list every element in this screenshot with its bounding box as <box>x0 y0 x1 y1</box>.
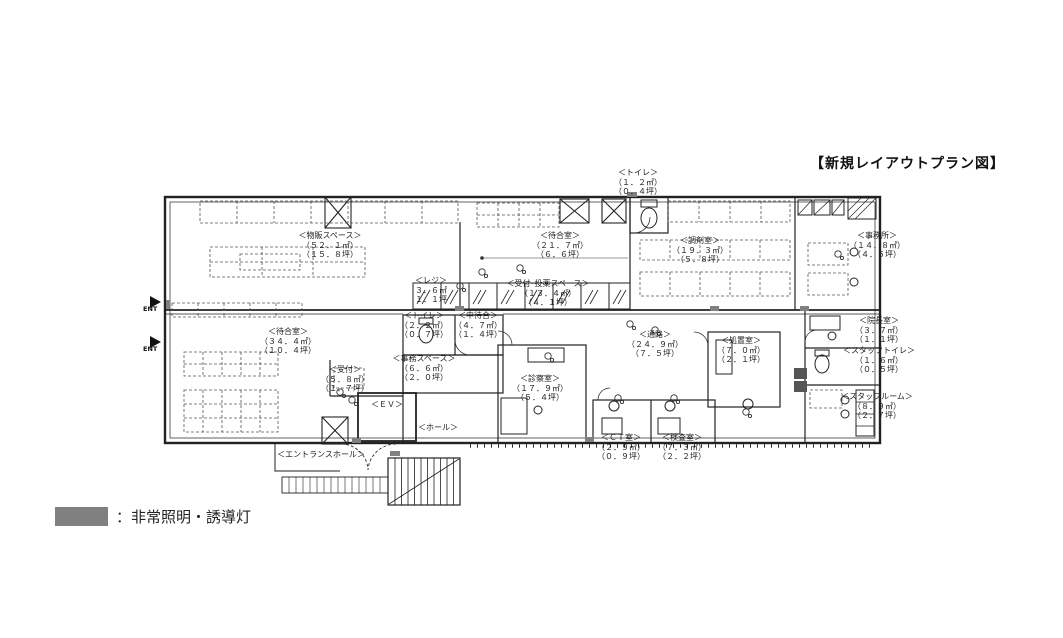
room-name: ＜物販スペース＞ <box>298 231 361 241</box>
room-area: （６．６㎡） <box>392 364 455 374</box>
room-area: （３．７㎡） <box>855 326 903 336</box>
room-tsubo: （２．２坪） <box>658 452 706 462</box>
room-label-toilet-mid: ＜トイレ＞ （２．２㎡） （０．７坪） <box>400 311 448 340</box>
room-name: ＜スタッフルーム＞ <box>841 392 913 402</box>
room-area: （７．０㎡） <box>717 346 765 356</box>
room-tsubo: （１．１坪） <box>855 335 903 345</box>
room-tsubo: （４．５坪） <box>849 250 905 260</box>
ent-label: ENT <box>143 345 157 353</box>
room-area: （２１．７㎡） <box>532 241 588 251</box>
room-label-kensa: ＜検査室＞ （７．３㎡） （２．２坪） <box>658 433 706 462</box>
room-label-reji: ＜レジ＞ ３．６㎡ １．１坪 <box>415 276 447 305</box>
room-name: ＜院長室＞ <box>855 316 903 326</box>
emergency-light-swatch <box>55 507 108 526</box>
room-name: ＜ＣＴ室＞ <box>597 433 645 443</box>
room-name: ＜エントランスホール＞ <box>277 450 365 460</box>
room-name: ＜待合室＞ <box>532 231 588 241</box>
room-tsubo: （５．８坪） <box>672 255 728 265</box>
toilet-fixture <box>815 355 829 373</box>
room-label-entrance-hall: ＜エントランスホール＞ <box>277 450 365 460</box>
legend-label: ：非常照明・誘導灯 <box>116 506 251 527</box>
room-label-ct: ＜ＣＴ室＞ （２．９㎡） （０．９坪） <box>597 433 645 462</box>
room-label-bussan-space: ＜物販スペース＞ （５２．１㎡） （１５．８坪） <box>298 231 361 260</box>
room-label-uketsuke: ＜受付＞ （５．８㎡） （１．７坪） <box>321 365 369 394</box>
room-label-shochi: ＜処置室＞ （７．０㎡） （２．１坪） <box>717 336 765 365</box>
room-area: （１３．４㎡） <box>506 289 589 299</box>
room-name: ＜受付＞ <box>321 365 369 375</box>
room-tsubo: （２．０坪） <box>392 373 455 383</box>
room-tsubo: １．１坪 <box>415 295 447 305</box>
room-label-staff-toilet: ＜スタッフトイレ＞ （１．６㎡） （０．５坪） <box>843 346 915 375</box>
room-area: ３．６㎡ <box>415 286 447 296</box>
room-name: ＜事務所＞ <box>849 231 905 241</box>
room-tsubo: （０．５坪） <box>843 365 915 375</box>
room-label-waiting-left: ＜待合室＞ （３４．４㎡） （１０．４坪） <box>260 327 316 356</box>
room-label-incho: ＜院長室＞ （３．７㎡） （１．１坪） <box>855 316 903 345</box>
room-tsubo: （２．７坪） <box>841 411 913 421</box>
toilet-fixture <box>641 208 657 228</box>
room-area: （５２．１㎡） <box>298 241 361 251</box>
outer-walls <box>165 197 880 443</box>
room-tsubo: （０．９坪） <box>597 452 645 462</box>
room-tsubo: （１．７坪） <box>321 384 369 394</box>
room-name: ＜検査室＞ <box>658 433 706 443</box>
room-label-shinsatsu: ＜診察室＞ （１７．９㎡） （５．４坪） <box>512 374 568 403</box>
room-tsubo: （１０．４坪） <box>260 346 316 356</box>
floorplan-drawing <box>0 0 1063 638</box>
room-name: ＜事務スペース＞ <box>392 354 455 364</box>
room-label-jimu-space: ＜事務スペース＞ （６．６㎡） （２．０坪） <box>392 354 455 383</box>
room-name: ＜待合室＞ <box>260 327 316 337</box>
room-name: ＜通路＞ <box>627 330 683 340</box>
room-area: （１．６㎡） <box>843 356 915 366</box>
room-label-nakamachiai: ＜中待合＞ （４．７㎡） （１．４坪） <box>454 311 502 340</box>
room-label-staff-room: ＜スタッフルーム＞ （８．９㎡） （２．７坪） <box>841 392 913 421</box>
room-label-hall: ＜ホール＞ <box>418 423 458 433</box>
room-name: ＜調剤室＞ <box>672 236 728 246</box>
room-tsubo: （６．６坪） <box>532 250 588 260</box>
room-area: （８．９㎡） <box>841 402 913 412</box>
room-name: ＜スタッフトイレ＞ <box>843 346 915 356</box>
room-area: （４．７㎡） <box>454 321 502 331</box>
room-tsubo: （５．４坪） <box>512 393 568 403</box>
ent-label: ENT <box>143 305 157 313</box>
room-tsubo: （０．４坪） <box>614 187 662 197</box>
room-tsubo: （１．４坪） <box>454 330 502 340</box>
room-tsubo: （２．１坪） <box>717 355 765 365</box>
legend: ：非常照明・誘導灯 <box>55 506 251 527</box>
room-name: ＜受付･投薬スペース＞ <box>506 279 589 289</box>
room-label-jimusho: ＜事務所＞ （１４．８㎡） （４．５坪） <box>849 231 905 260</box>
room-tsubo: （４．１坪） <box>506 298 589 308</box>
room-area: （１４．８㎡） <box>849 241 905 251</box>
ent-arrows <box>150 296 161 348</box>
page-title: 【新規レイアウトプラン図】 <box>810 153 1005 173</box>
room-area: （１７．９㎡） <box>512 384 568 394</box>
room-name: ＜トイレ＞ <box>400 311 448 321</box>
furniture-dashed <box>172 201 848 432</box>
room-tsubo: （７．５坪） <box>627 349 683 359</box>
room-tsubo: （０．７坪） <box>400 330 448 340</box>
room-area: （７．３㎡） <box>658 443 706 453</box>
room-name: ＜処置室＞ <box>717 336 765 346</box>
room-area: （２．２㎡） <box>400 321 448 331</box>
room-label-ev: ＜ＥＶ＞ <box>371 400 403 410</box>
room-label-toilet-top: ＜トイレ＞ （１．２㎡） （０．４坪） <box>614 168 662 197</box>
room-name: ＜レジ＞ <box>415 276 447 286</box>
room-area: （５．８㎡） <box>321 375 369 385</box>
room-area: （３４．４㎡） <box>260 337 316 347</box>
room-label-chozai: ＜調剤室＞ （１９．３㎡） （５．８坪） <box>672 236 728 265</box>
floorplan-page: 【新規レイアウトプラン図】 ENT ENT ＜物販スペース＞ （５２．１㎡） （… <box>0 0 1063 638</box>
room-area: （１９．３㎡） <box>672 246 728 256</box>
room-area: （２４．９㎡） <box>627 340 683 350</box>
room-area: （１．２㎡） <box>614 178 662 188</box>
room-name: ＜ＥＶ＞ <box>371 400 403 410</box>
room-name: ＜中待合＞ <box>454 311 502 321</box>
room-label-waiting-upper: ＜待合室＞ （２１．７㎡） （６．６坪） <box>532 231 588 260</box>
room-label-tsuro: ＜通路＞ （２４．９㎡） （７．５坪） <box>627 330 683 359</box>
room-name: ＜トイレ＞ <box>614 168 662 178</box>
room-area: （２．９㎡） <box>597 443 645 453</box>
front-wall <box>165 310 880 314</box>
stairs <box>388 458 460 505</box>
room-name: ＜ホール＞ <box>418 423 458 433</box>
room-label-uketsuke-toyaku: ＜受付･投薬スペース＞ （１３．４㎡） （４．１坪） <box>506 279 589 308</box>
room-tsubo: （１５．８坪） <box>298 250 361 260</box>
room-name: ＜診察室＞ <box>512 374 568 384</box>
